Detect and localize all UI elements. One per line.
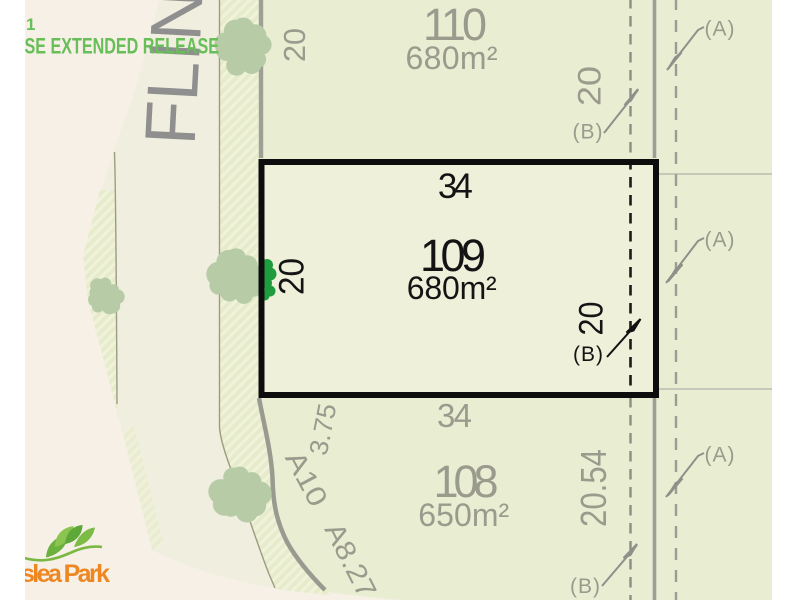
svg-text:680m²: 680m² [407, 270, 497, 306]
svg-text:(A): (A) [705, 229, 735, 252]
svg-text:(A): (A) [705, 18, 735, 41]
svg-text:(B): (B) [570, 575, 600, 598]
svg-text:1: 1 [26, 15, 35, 34]
svg-text:20: 20 [277, 28, 312, 62]
svg-text:(B): (B) [573, 121, 603, 144]
svg-text:slea Park: slea Park [21, 560, 110, 588]
svg-text:680m²: 680m² [406, 40, 498, 76]
svg-text:FLIN: FLIN [131, 0, 219, 147]
svg-text:650m²: 650m² [418, 497, 509, 533]
svg-text:34: 34 [438, 167, 473, 206]
svg-text:SE EXTENDED RELEASE: SE EXTENDED RELEASE [25, 34, 220, 59]
svg-text:20.54: 20.54 [573, 449, 614, 527]
svg-text:20: 20 [573, 302, 611, 336]
svg-text:20: 20 [572, 66, 608, 106]
svg-text:(B): (B) [573, 343, 603, 366]
svg-text:20: 20 [273, 258, 312, 295]
svg-text:34: 34 [437, 397, 472, 434]
svg-text:(A): (A) [705, 444, 735, 467]
